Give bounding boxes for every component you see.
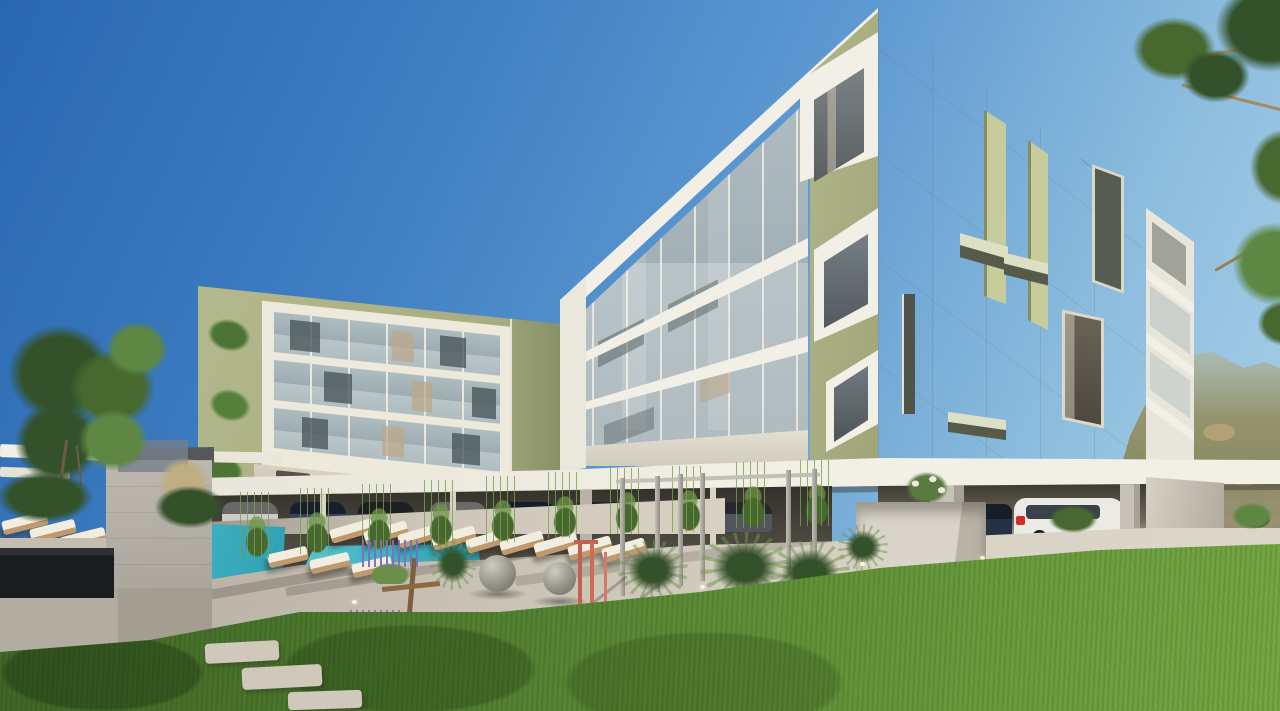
shrub: [1224, 498, 1280, 534]
balcony-recess: [440, 335, 466, 368]
bar-counter: [0, 548, 114, 602]
inground-light: [980, 556, 985, 560]
curtain: [412, 380, 432, 412]
lavender: [362, 540, 418, 584]
facade-edge-band: [558, 270, 588, 480]
outdoor-shower-coral: [604, 552, 607, 604]
balcony-recess: [452, 433, 480, 466]
right-building-edge-trim: [1146, 200, 1194, 470]
stepping-stone: [241, 664, 322, 690]
outdoor-shower-coral: [578, 540, 582, 614]
shrub: [142, 478, 238, 536]
planter-grass: [300, 488, 334, 554]
curtain: [382, 425, 404, 457]
ornamental-grass: [430, 538, 476, 590]
hanging-plants-icon: [200, 310, 258, 360]
concrete-sphere: [479, 555, 516, 592]
suv-taillight: [1016, 516, 1025, 525]
balcony-recess: [324, 371, 352, 404]
right-tree-foliage: [1170, 40, 1262, 112]
planter-grass: [240, 492, 274, 558]
inground-light: [700, 585, 705, 589]
planter-grass: [736, 462, 770, 528]
balcony-recess: [472, 387, 496, 420]
architectural-render: [0, 0, 1280, 711]
slot-window: [902, 294, 915, 414]
curtain: [392, 330, 414, 362]
planter-grass: [424, 480, 458, 546]
inground-light: [860, 562, 865, 566]
stepping-stone: [205, 640, 280, 664]
facade-fin: [1028, 134, 1050, 334]
hanging-plants-icon: [202, 380, 258, 430]
window: [1092, 164, 1124, 294]
left-tree-canopy: [95, 312, 179, 386]
pergola-beam: [212, 451, 282, 463]
ornamental-grass: [618, 540, 688, 600]
outdoor-shower-coral: [590, 542, 594, 612]
inground-light: [352, 600, 357, 604]
window: [1062, 310, 1104, 429]
balcony-recess: [302, 417, 328, 450]
planter-grass: [548, 472, 582, 538]
shrub: [1040, 500, 1106, 538]
balcony-recess: [290, 320, 320, 353]
planter-grass: [486, 476, 520, 542]
left-building-white-frame: [262, 301, 510, 491]
stepping-stone: [288, 690, 363, 711]
planter-grass: [800, 460, 834, 526]
concrete-sphere: [543, 562, 576, 595]
